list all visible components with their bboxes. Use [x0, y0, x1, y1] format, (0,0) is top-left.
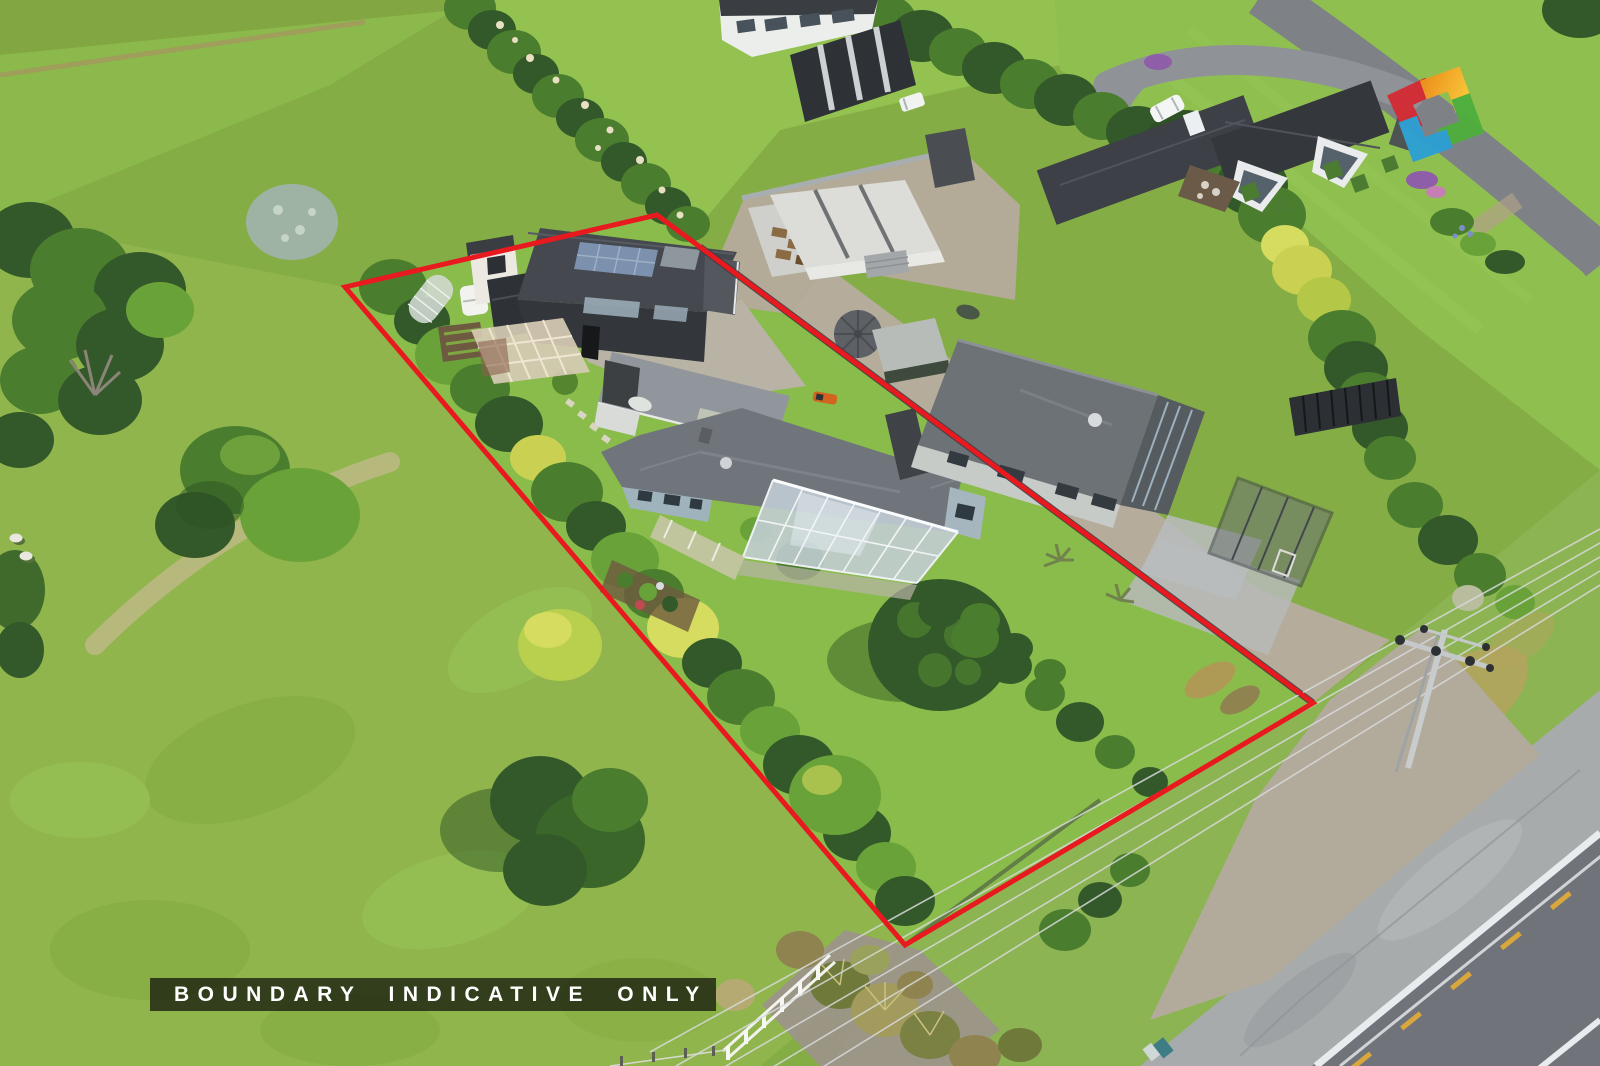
silver-tree: [246, 184, 338, 260]
caption-bar: BOUNDARY INDICATIVE ONLY: [150, 978, 716, 1011]
barn-door: [581, 325, 600, 360]
caption-text: BOUNDARY INDICATIVE ONLY: [174, 983, 708, 1007]
satellite-dish: [720, 457, 732, 469]
neighbour-satellite-dish: [1088, 413, 1102, 427]
aerial-photo-svg: [0, 0, 1600, 1066]
aerial-listing-photo: BOUNDARY INDICATIVE ONLY: [0, 0, 1600, 1066]
